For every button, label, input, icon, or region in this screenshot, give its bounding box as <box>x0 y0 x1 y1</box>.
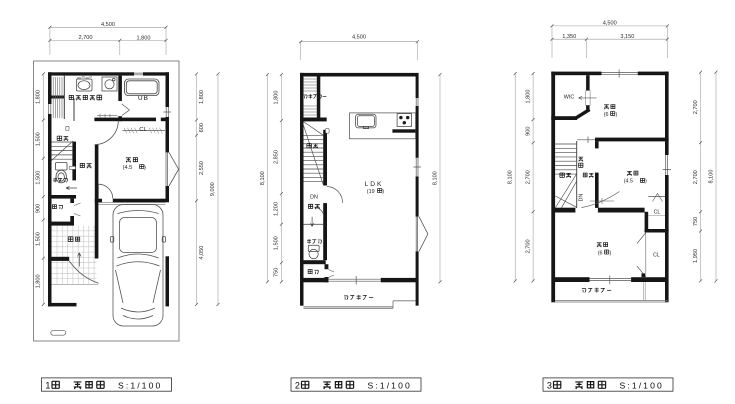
svg-text:8,100: 8,100 <box>508 170 514 184</box>
svg-text:): ) <box>382 189 384 195</box>
svg-text:8,100: 8,100 <box>708 170 714 184</box>
svg-text:1,950: 1,950 <box>693 249 699 263</box>
svg-text:1,800: 1,800 <box>137 35 151 41</box>
svg-text:750: 750 <box>693 217 699 226</box>
svg-text:(4.5: (4.5 <box>123 165 133 171</box>
svg-text:8,100: 8,100 <box>432 171 438 185</box>
svg-text:1,500: 1,500 <box>274 236 280 250</box>
svg-text:): ) <box>645 179 647 185</box>
svg-text:LDK: LDK <box>365 181 384 188</box>
svg-text:WIC: WIC <box>564 95 575 101</box>
svg-text:4,050: 4,050 <box>199 246 205 260</box>
svg-text:2,700: 2,700 <box>693 100 699 114</box>
svg-text:(4.5: (4.5 <box>624 179 633 185</box>
svg-text:1,500: 1,500 <box>36 132 42 146</box>
svg-text:): ) <box>616 112 618 118</box>
svg-text:(19: (19 <box>367 189 375 195</box>
svg-text:2,700: 2,700 <box>525 170 531 184</box>
svg-text:1,500: 1,500 <box>36 171 42 185</box>
svg-text:DN: DN <box>579 194 585 202</box>
svg-text:DN: DN <box>310 195 318 201</box>
svg-text:900: 900 <box>525 127 531 136</box>
svg-text:600: 600 <box>199 123 205 132</box>
svg-text:(6: (6 <box>604 112 609 118</box>
svg-text:1,800: 1,800 <box>274 91 280 105</box>
svg-text:CL: CL <box>139 127 147 133</box>
svg-text:S:1/100: S:1/100 <box>620 381 664 391</box>
svg-text:4,500: 4,500 <box>352 35 366 41</box>
svg-text:2: 2 <box>295 381 301 391</box>
svg-text:1,350: 1,350 <box>562 34 576 40</box>
svg-text:S:1/100: S:1/100 <box>118 381 162 391</box>
svg-text:): ) <box>144 165 146 171</box>
svg-text:2,850: 2,850 <box>274 150 280 164</box>
svg-text:UB: UB <box>138 95 149 102</box>
svg-text:900: 900 <box>36 204 42 213</box>
svg-text:2,700: 2,700 <box>79 35 93 41</box>
svg-text:CL: CL <box>654 210 661 216</box>
svg-text:2,550: 2,550 <box>199 161 205 175</box>
svg-text:CL: CL <box>653 253 660 259</box>
svg-text:(6: (6 <box>598 250 603 256</box>
svg-text:1,500: 1,500 <box>36 232 42 246</box>
svg-text:): ) <box>610 250 612 256</box>
svg-text:2,700: 2,700 <box>525 239 531 253</box>
svg-text:4,500: 4,500 <box>603 21 617 27</box>
svg-text:4,500: 4,500 <box>101 22 115 28</box>
svg-text:1,200: 1,200 <box>274 202 280 216</box>
svg-text:2,700: 2,700 <box>693 170 699 184</box>
svg-text:1: 1 <box>45 381 51 391</box>
svg-text:1,800: 1,800 <box>36 90 42 104</box>
svg-text:750: 750 <box>274 268 280 277</box>
svg-text:1,800: 1,800 <box>199 90 205 104</box>
svg-text:8,100: 8,100 <box>260 171 266 185</box>
svg-text:3: 3 <box>547 381 553 391</box>
svg-text:1,800: 1,800 <box>36 274 42 288</box>
svg-text:9,000: 9,000 <box>210 182 216 196</box>
svg-text:S:1/100: S:1/100 <box>368 381 412 391</box>
svg-text:1,800: 1,800 <box>525 90 531 104</box>
svg-text:3,150: 3,150 <box>620 34 634 40</box>
